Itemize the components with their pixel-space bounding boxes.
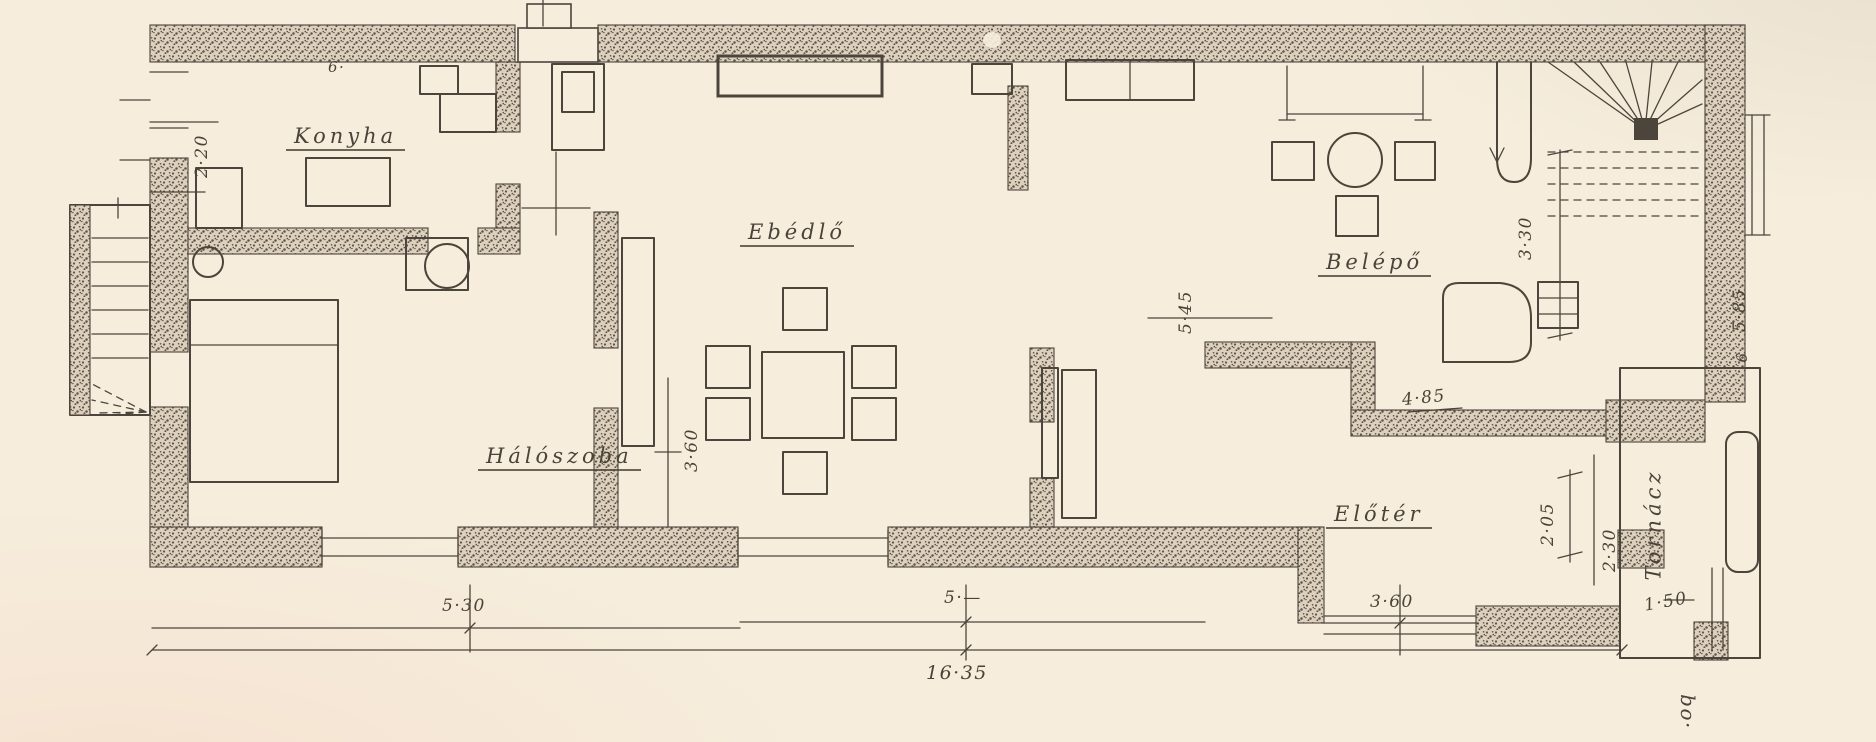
dim-porch-width: 2·30 bbox=[1600, 518, 1620, 582]
dim-kitchen-mark: 6· bbox=[328, 58, 345, 76]
outer-walls bbox=[150, 25, 1745, 646]
dining-furniture bbox=[622, 56, 896, 494]
dim-bedroom-width: 5·30 bbox=[442, 596, 486, 616]
dim-foyer-width: 3·60 bbox=[1370, 592, 1414, 612]
room-label-kitchen: Konyha bbox=[286, 124, 405, 151]
dim-dining-width: 5·— bbox=[944, 588, 982, 608]
dim-kitchen-height: 2·20 bbox=[192, 126, 212, 186]
floorplan-scan: Konyha Ebédlő Belépő Hálószoba Előtér To… bbox=[0, 0, 1876, 742]
dim-foyer-height: 2·05 bbox=[1538, 492, 1558, 556]
room-label-porch: Tornácz bbox=[1642, 433, 1667, 589]
dim-right-mark: 6 bbox=[1733, 331, 1751, 383]
exterior-stair bbox=[70, 198, 150, 415]
dim-dining-height: 5·45 bbox=[1176, 280, 1196, 344]
dim-total-width: 16·35 bbox=[926, 662, 988, 684]
room-label-foyer: Előtér bbox=[1326, 502, 1432, 529]
dim-entry-height: 3·30 bbox=[1516, 206, 1536, 270]
bedroom-furniture bbox=[190, 238, 469, 482]
entry-furniture bbox=[972, 60, 1578, 362]
plan-drawing bbox=[0, 0, 1876, 742]
room-label-entry: Belépő bbox=[1318, 250, 1431, 277]
front-entry bbox=[518, 0, 604, 235]
interior-stair bbox=[1490, 62, 1702, 216]
signature-mark: bo· bbox=[1676, 684, 1700, 740]
room-label-dining: Ebédlő bbox=[740, 220, 854, 247]
dim-bedroom-wall: 3·60 bbox=[682, 418, 702, 482]
room-label-bedroom: Hálószoba bbox=[478, 444, 641, 471]
